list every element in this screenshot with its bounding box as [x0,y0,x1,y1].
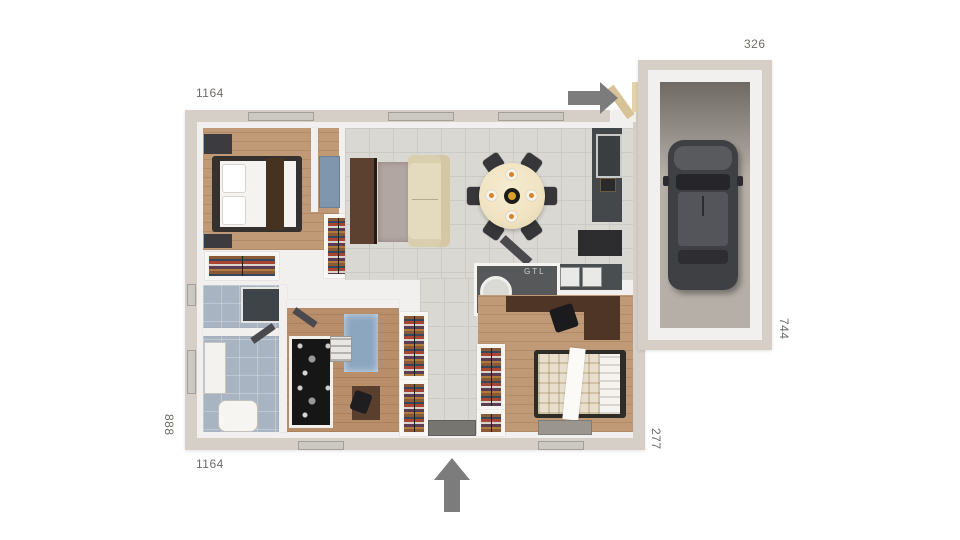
window-icon [248,112,314,121]
dimension-left-depth: 888 [162,414,176,436]
bathroom-sink-cabinet [204,342,226,394]
car-roof-line [702,196,704,216]
wardrobe [477,410,505,436]
dimension-garage-depth: 744 [777,318,791,340]
sofa [408,155,450,247]
bathtub [218,400,258,432]
bedroom-2-left-wall [279,285,287,432]
place-setting [526,190,537,201]
car-rear-window [678,250,728,264]
place-setting [506,169,517,180]
tv-console [350,158,377,244]
nightstand [204,134,232,154]
wardrobe [205,252,279,280]
door-mat [428,420,476,436]
nightstand [204,234,232,248]
arrow-up-icon [434,458,470,512]
living-rug [378,162,410,242]
gtl-label: GTL [524,267,552,277]
car-windshield [676,174,730,190]
clothes [481,348,501,406]
clothes [481,414,501,432]
car-mirror [663,176,669,186]
dimension-right-offset: 277 [649,428,663,450]
kitchen-appliance [600,178,616,192]
entry-hall-floor [420,278,478,434]
shower [241,287,283,323]
wardrobe [400,312,428,380]
fridge [596,134,622,178]
clothes [209,256,275,276]
window-icon [187,350,196,394]
window-icon [187,284,196,306]
wardrobe [477,344,505,410]
bed-3-pillows [600,354,620,414]
bedroom-2-top-wall [287,300,399,308]
single-bed-floral [289,336,333,428]
place-setting [486,190,497,201]
pillow [222,196,246,225]
car-hood [674,146,732,170]
clothes [404,316,424,376]
arrow-right-icon [568,82,618,114]
window-icon [498,112,564,121]
window-icon [388,112,454,121]
dimension-garage-width: 326 [744,37,766,51]
center-bowl-food [508,192,516,200]
car-mirror [737,176,743,186]
bedroom-3-desk-return [584,296,620,340]
dimension-top-width: 1164 [196,86,224,100]
dimension-bottom-width: 1164 [196,457,224,471]
window-icon [538,441,584,450]
place-setting [506,211,517,222]
pillow [222,164,246,193]
bed-ladder [330,336,352,362]
bed-runner [266,158,284,230]
sofa-cushion-line [412,199,438,200]
bedroom-1-partition-wall [311,128,318,212]
wardrobe [400,380,428,436]
sink-basin [582,267,602,287]
desk-blue [319,156,340,208]
kitchen-counter-l [578,230,622,256]
floorplan-canvas: GTL [0,0,960,540]
clothes [404,384,424,432]
bedroom-3-rug [538,420,592,435]
window-icon [298,441,344,450]
sink-basin [560,267,580,287]
